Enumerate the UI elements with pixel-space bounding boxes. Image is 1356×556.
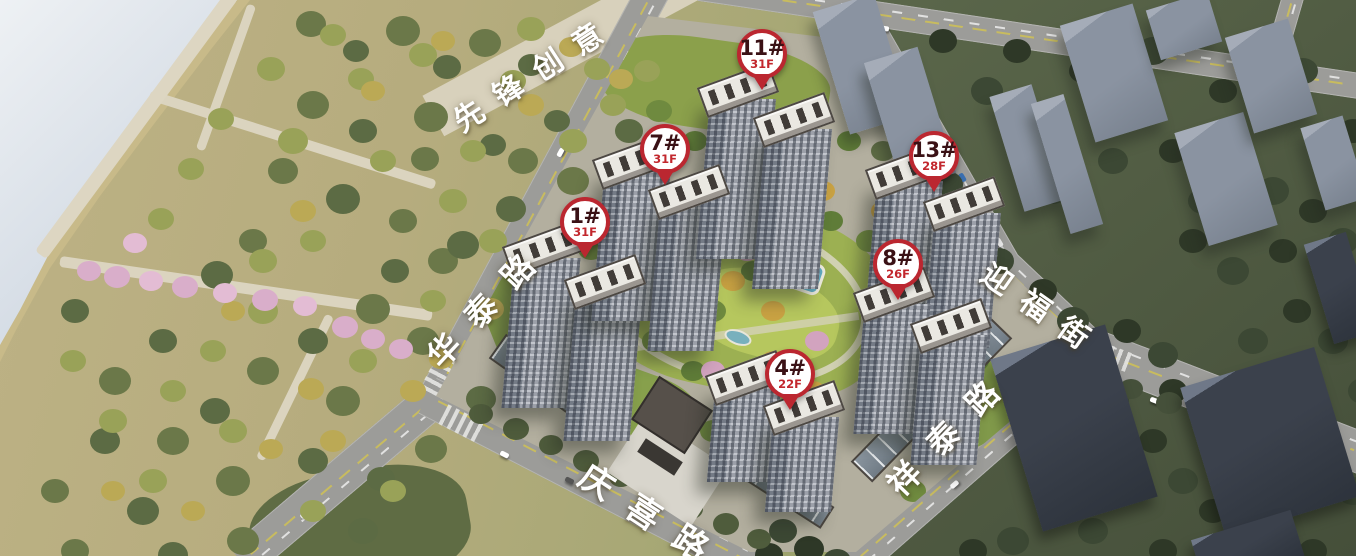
marker-number: 8# <box>882 247 913 269</box>
marker-floors: 31F <box>750 59 774 71</box>
marker-tail <box>780 394 800 410</box>
marker-head: 1# 31F <box>560 197 610 247</box>
marker-floors: 28F <box>922 161 946 173</box>
aerial-masterplan-scene: 先锋创意 华泰路 迎福街 祥泰路 庆喜路 1# 31F 4# 22F 7# 31… <box>0 0 1356 556</box>
street-trees <box>0 0 22 18</box>
tower-11-facade <box>752 129 832 289</box>
marker-head: 13# 28F <box>909 131 959 181</box>
marker-floors: 22F <box>778 379 802 391</box>
marker-tail <box>888 284 908 300</box>
marker-number: 7# <box>649 132 680 154</box>
marker-number: 4# <box>774 357 805 379</box>
building-marker-13[interactable]: 13# 28F <box>909 131 959 192</box>
marker-tail <box>655 169 675 185</box>
marker-number: 1# <box>569 205 600 227</box>
building-marker-8[interactable]: 8# 26F <box>873 239 923 300</box>
marker-floors: 31F <box>573 227 597 239</box>
marker-head: 7# 31F <box>640 124 690 174</box>
building-marker-1[interactable]: 1# 31F <box>560 197 610 258</box>
marker-head: 11# 31F <box>737 29 787 79</box>
marker-tail <box>924 176 944 192</box>
marker-tail <box>575 242 595 258</box>
marker-number: 11# <box>739 37 784 59</box>
marker-number: 13# <box>911 139 956 161</box>
building-marker-7[interactable]: 7# 31F <box>640 124 690 185</box>
building-marker-4[interactable]: 4# 22F <box>765 349 815 410</box>
marker-floors: 26F <box>886 269 910 281</box>
building-marker-11[interactable]: 11# 31F <box>737 29 787 90</box>
marker-tail <box>752 74 772 90</box>
marker-head: 4# 22F <box>765 349 815 399</box>
marker-floors: 31F <box>653 154 677 166</box>
marker-head: 8# 26F <box>873 239 923 289</box>
